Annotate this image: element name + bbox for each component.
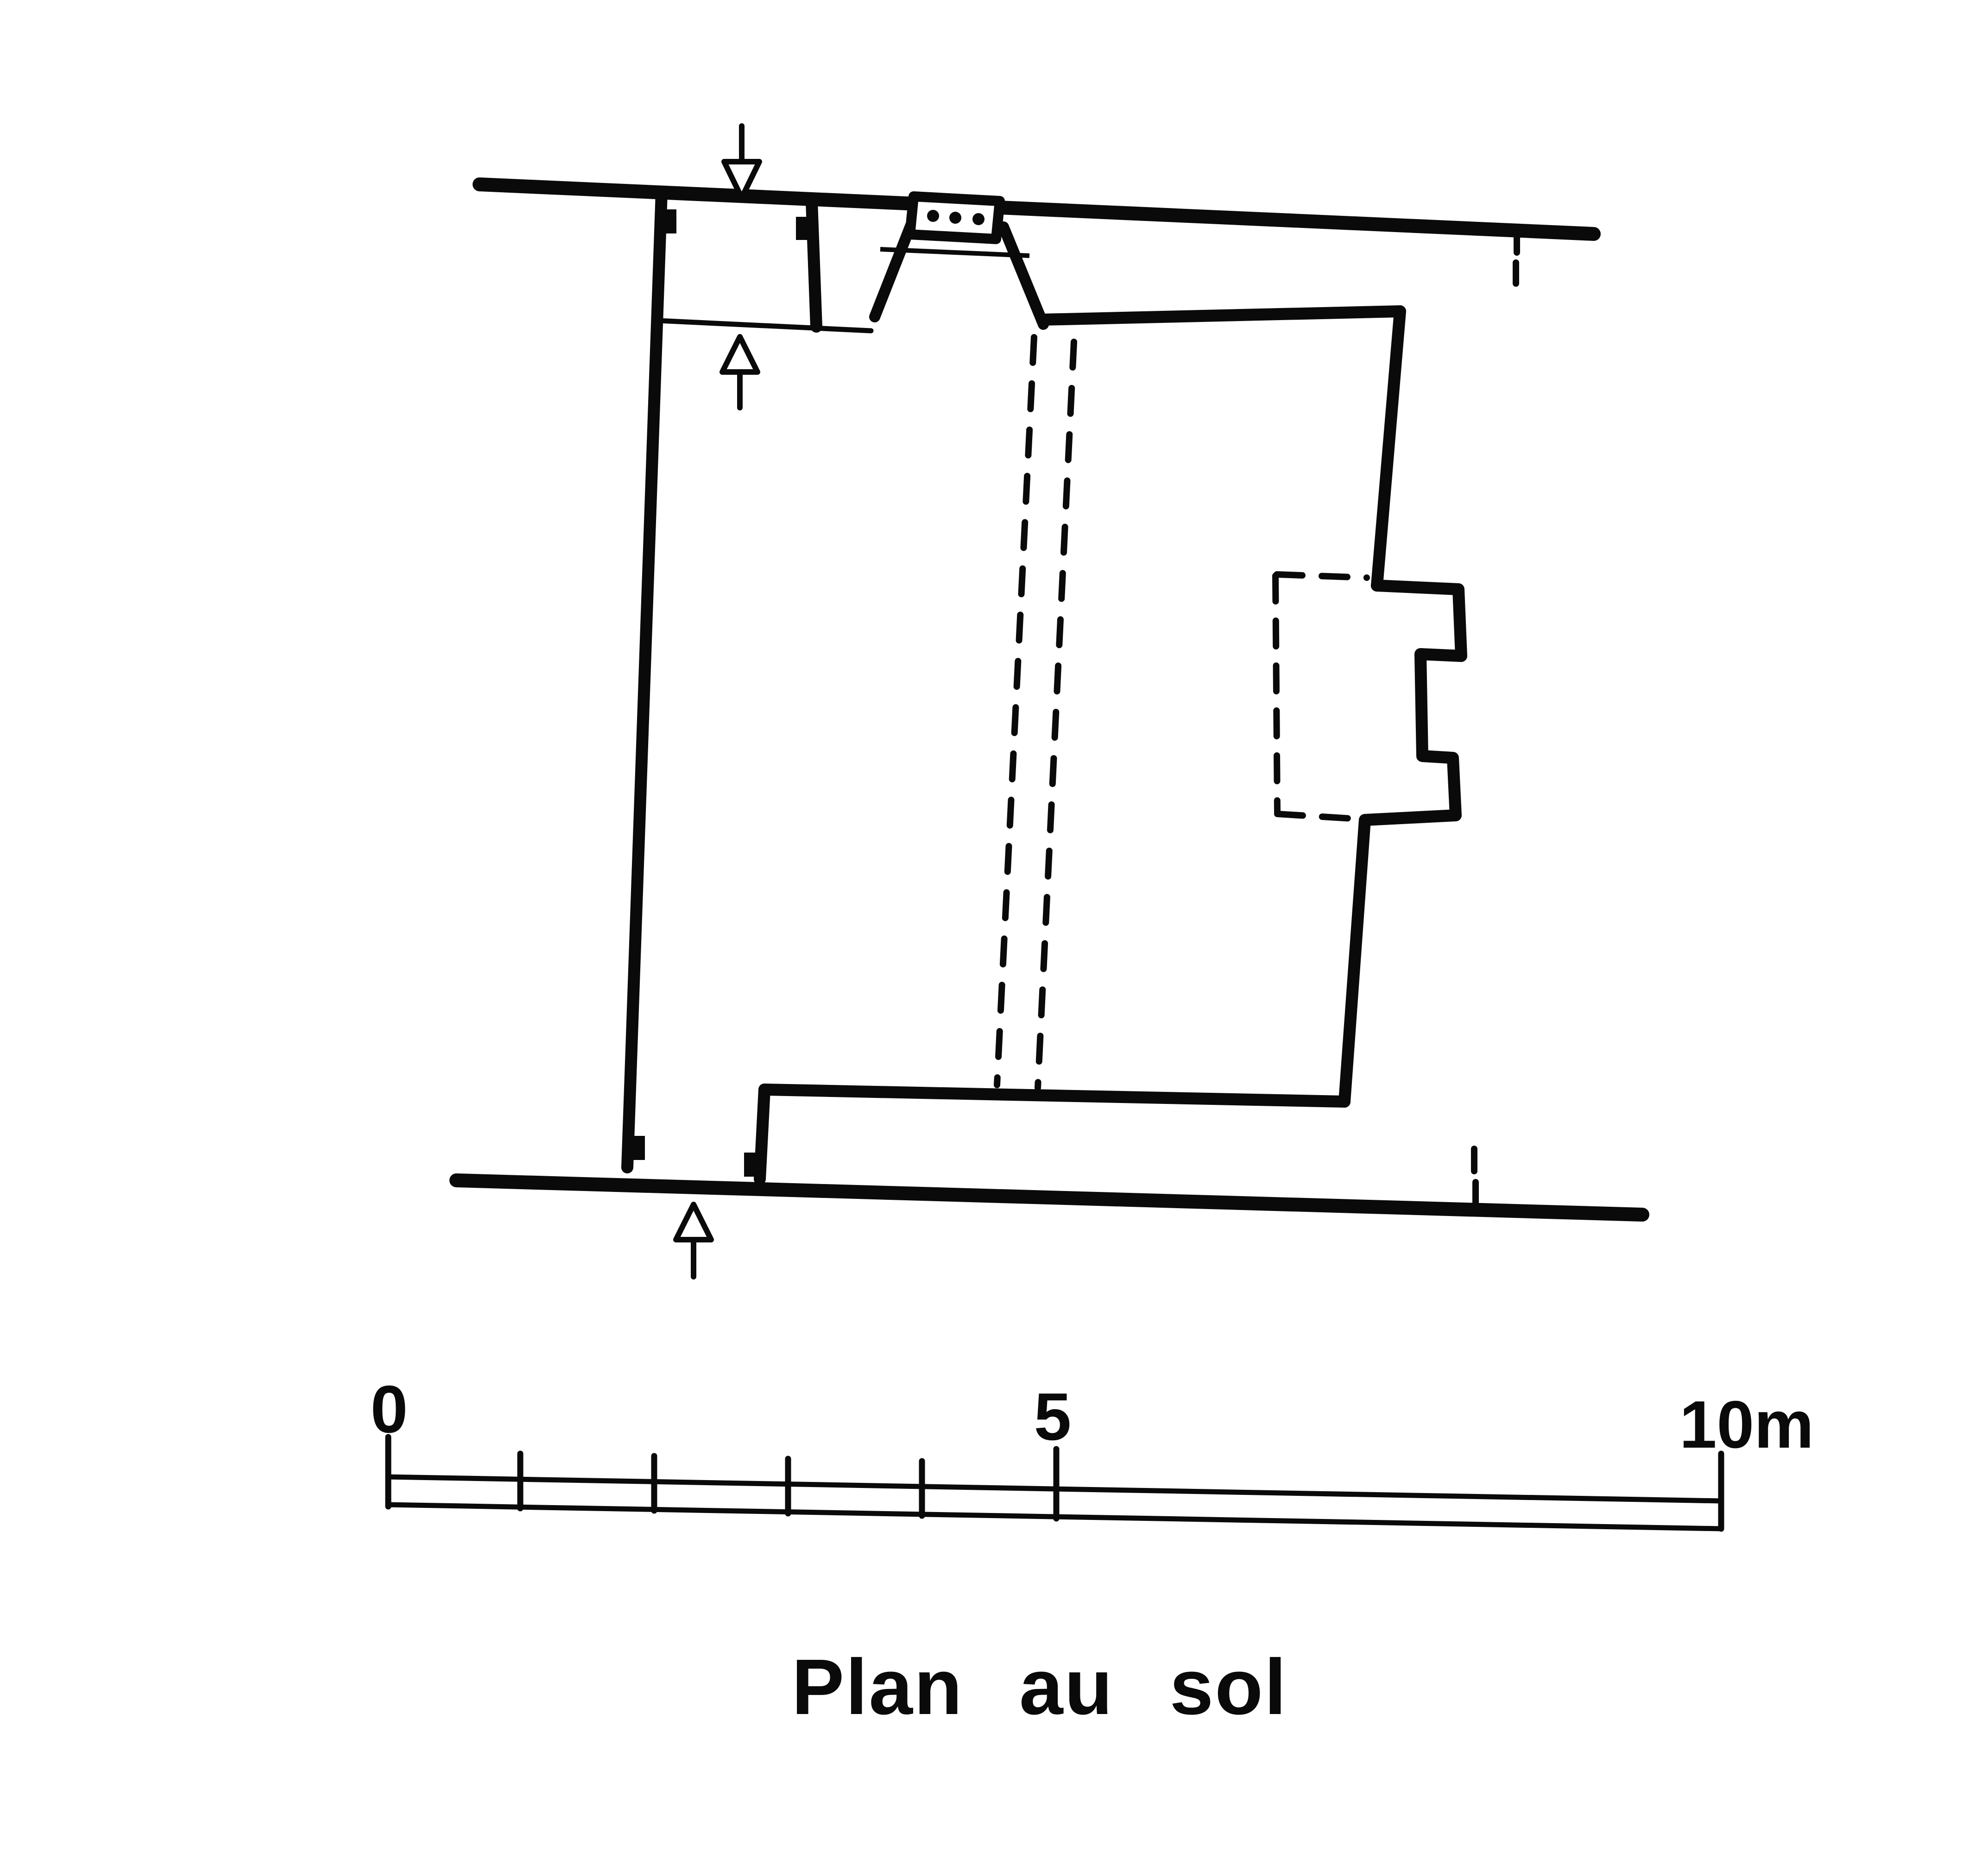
projection-dashed-outline	[1275, 574, 1367, 819]
vestibule-right-wall-jamb	[796, 217, 812, 240]
scale-bar: 0 5 10m	[371, 1372, 1814, 1529]
scale-label-5: 5	[1034, 1379, 1072, 1454]
window-embrasure	[875, 196, 1043, 324]
scale-label-0: 0	[371, 1372, 408, 1447]
interior-dashed-line-b	[1038, 342, 1074, 1088]
southwest-step-jamb	[744, 1153, 760, 1177]
street-line-top	[480, 184, 1594, 234]
street-dash-mark-top-right	[1516, 235, 1517, 284]
window-splay-right	[1003, 227, 1043, 324]
south-wall	[764, 1090, 1344, 1102]
left-wall	[627, 192, 662, 1167]
dashed-lines	[997, 337, 1367, 1088]
entrance-arrows	[676, 126, 759, 1277]
street-line-bottom	[456, 1180, 1642, 1215]
street-dash-mark-bottom-right	[1474, 1149, 1476, 1203]
floor-plan-svg: 0 5 10m Plan au sol	[0, 0, 1988, 1853]
top-wall	[1043, 311, 1400, 320]
southwest-step-wall	[760, 1090, 764, 1179]
threshold-line	[658, 321, 871, 331]
east-projection-teeth	[1344, 586, 1461, 1102]
right-wall-upper	[1377, 311, 1400, 586]
plan-title: Plan au sol	[792, 1643, 1287, 1731]
entrance-arrow-bottom-icon	[676, 1204, 711, 1277]
left-wall-jamb-top	[663, 209, 676, 233]
building-outline	[627, 192, 1461, 1179]
vestibule-right-wall	[812, 202, 816, 327]
left-wall-jamb-bottom	[631, 1136, 645, 1160]
interior-dashed-line-a	[997, 337, 1034, 1085]
scale-label-10m: 10m	[1679, 1387, 1814, 1462]
entrance-arrow-middle-icon	[722, 337, 757, 408]
entrance-arrow-top-icon	[724, 126, 759, 198]
plan-sheet: 0 5 10m Plan au sol	[0, 0, 1988, 1853]
window-splay-left	[875, 225, 911, 317]
